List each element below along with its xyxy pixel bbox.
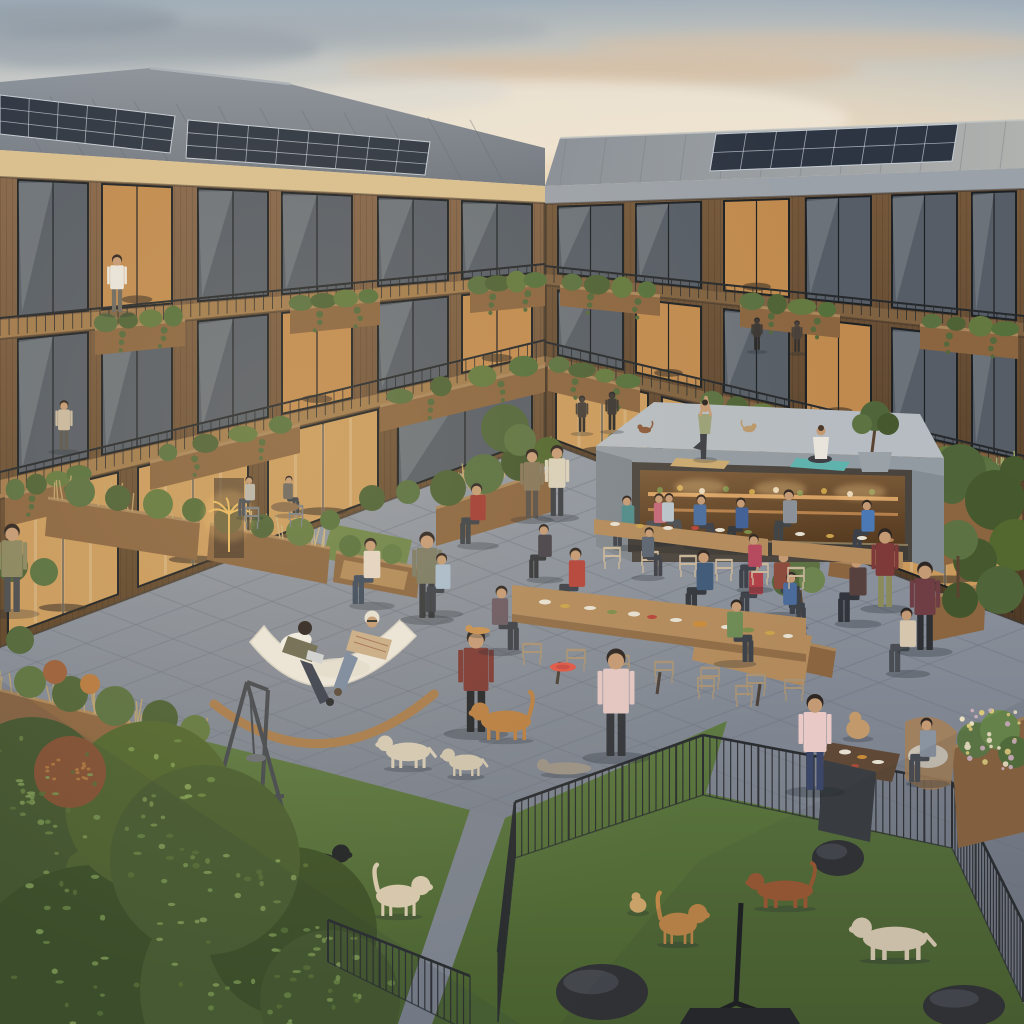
scene-image [0,0,1024,1024]
courtyard-photo [0,0,1024,1024]
